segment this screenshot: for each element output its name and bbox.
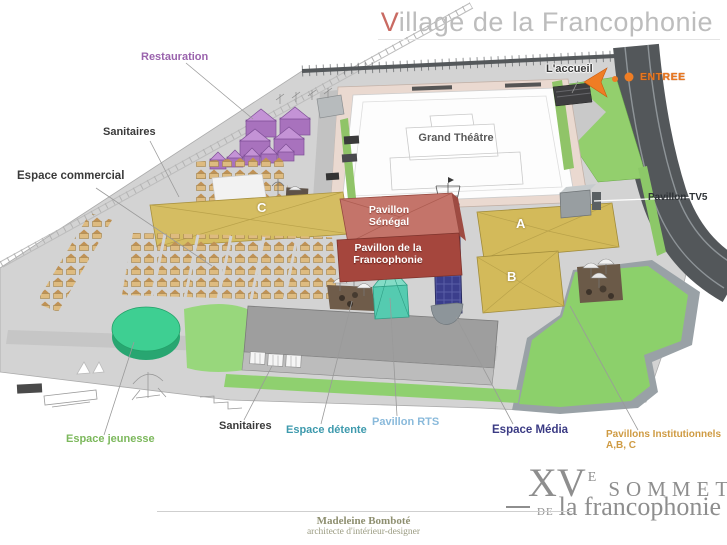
label-restauration: Restauration <box>141 51 208 63</box>
label-pavillon-senegal: Pavillon Sénégal <box>350 205 428 228</box>
label-building-a: A <box>516 216 525 231</box>
pavillon-senegal-line1: Pavillon <box>350 205 428 217</box>
footer-divider <box>157 511 572 512</box>
title-divider <box>378 39 720 40</box>
label-espace-jeunesse: Espace jeunesse <box>66 433 155 445</box>
pavillon-francophonie-line2: Francophonie <box>341 254 435 266</box>
label-sanitaires-bottom: Sanitaires <box>219 420 272 432</box>
title-accent-letter: V <box>381 7 399 37</box>
label-espace-detente: Espace détente <box>286 424 367 436</box>
espace-jeunesse-circle <box>112 307 180 360</box>
label-pavillons-institutionnels: Pavillons Institutionnels A,B, C <box>606 429 721 451</box>
credit-block: Madeleine Bomboté architecte d'intérieur… <box>0 515 727 537</box>
label-espace-commercial: Espace commercial <box>17 170 124 182</box>
pavillon-senegal-line2: Sénégal <box>350 217 428 229</box>
page-title: Village de la Francophonie <box>381 7 713 38</box>
label-pavillon-francophonie: Pavillon de la Francophonie <box>341 242 435 266</box>
title-rest: illage de la Francophonie <box>399 7 713 37</box>
summit-logo: XV E SOMMET DE la francophonie <box>528 464 727 522</box>
pavillons-institutionnels-line1: Pavillons Institutionnels <box>606 429 721 440</box>
label-espace-media: Espace Média <box>492 424 568 436</box>
label-entree: ENTREE <box>640 71 686 83</box>
pavillon-francophonie-line1: Pavillon de la <box>341 242 435 254</box>
label-building-c: C <box>257 200 266 215</box>
building-b <box>477 251 564 313</box>
label-sanitaires-top: Sanitaires <box>103 126 156 138</box>
label-pavillon-tv5: Pavillon TV5 <box>648 192 707 203</box>
logo-dash <box>506 506 530 508</box>
label-grand-theatre: Grand Théâtre <box>406 132 506 144</box>
site-plan-page: Village de la Francophonie Restauration … <box>0 0 727 545</box>
credit-name: Madeleine Bomboté <box>0 515 727 527</box>
accueil-canopy <box>553 83 592 106</box>
logo-superscript: E <box>588 470 597 486</box>
label-accueil: L'accueil <box>546 63 593 75</box>
credit-role: architecte d'intérieur-designer <box>0 527 727 537</box>
pavillons-institutionnels-line2: A,B, C <box>606 440 721 451</box>
label-pavillon-rts: Pavillon RTS <box>372 416 439 428</box>
label-building-b: B <box>507 269 516 284</box>
